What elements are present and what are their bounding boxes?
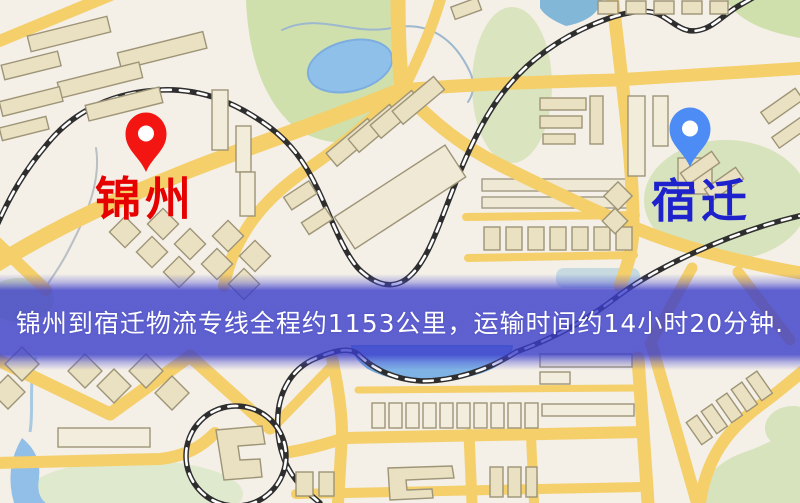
route-info-banner: 锦州到宿迁物流专线全程约1153公里，运输时间约14小时20分钟.	[0, 274, 800, 370]
origin-city-label: 锦州	[90, 177, 200, 223]
destination-city-label: 宿迁	[636, 179, 766, 225]
origin-pin-icon	[126, 113, 167, 173]
logistics-route-map: 锦州 宿迁 锦州到宿迁物流专线全程约1153公里，运输时间约14小时20分钟.	[0, 0, 800, 503]
map-canvas	[0, 0, 800, 503]
route-info-text: 锦州到宿迁物流专线全程约1153公里，运输时间约14小时20分钟.	[16, 304, 784, 340]
